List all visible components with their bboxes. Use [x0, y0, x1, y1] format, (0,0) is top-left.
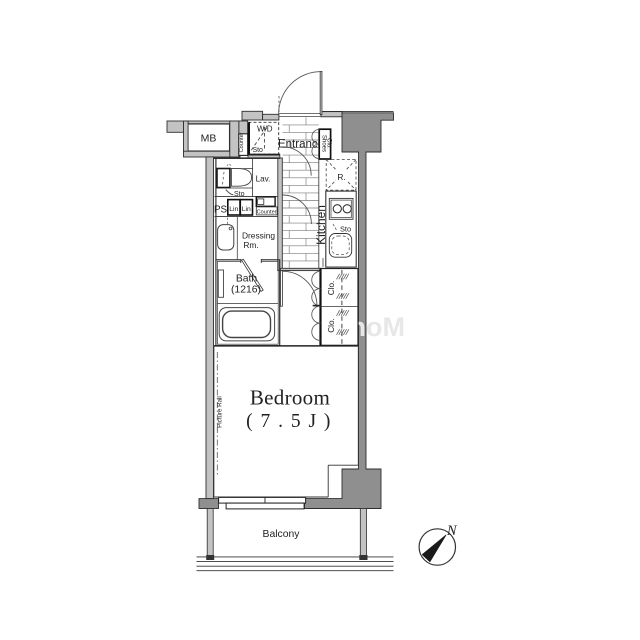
- svg-text:Lin: Lin: [229, 206, 238, 213]
- svg-text:Bedroom: Bedroom: [250, 386, 330, 410]
- svg-text:Bath: Bath: [236, 274, 258, 285]
- svg-text:Sto: Sto: [234, 191, 245, 198]
- svg-text:Shoes: Shoes: [321, 135, 327, 152]
- svg-text:( 7 . 5 J ): ( 7 . 5 J ): [246, 411, 332, 432]
- svg-text:Lav.: Lav.: [256, 175, 271, 184]
- svg-text:R.: R.: [337, 172, 345, 182]
- svg-text:Clo.: Clo.: [327, 281, 336, 296]
- svg-text:Picture Rail: Picture Rail: [217, 396, 224, 428]
- svg-text:Kitchen: Kitchen: [314, 205, 328, 245]
- svg-text:Clo.: Clo.: [327, 318, 336, 333]
- svg-text:Counter: Counter: [239, 132, 245, 152]
- svg-text:Sto: Sto: [252, 147, 263, 154]
- svg-text:MB: MB: [201, 133, 217, 145]
- svg-text:W/D: W/D: [257, 124, 273, 133]
- svg-text:PS: PS: [214, 205, 228, 216]
- svg-text:Rm.: Rm.: [243, 240, 258, 250]
- svg-text:Counter: Counter: [257, 209, 277, 215]
- svg-text:Clo.: Clo.: [326, 138, 332, 149]
- svg-text:N: N: [446, 523, 458, 539]
- svg-text:Balcony: Balcony: [263, 529, 301, 540]
- svg-text:(1216): (1216): [231, 285, 261, 296]
- svg-text:Dressing: Dressing: [242, 231, 275, 241]
- svg-text:Sto: Sto: [340, 225, 351, 234]
- svg-text:Lin: Lin: [242, 206, 251, 213]
